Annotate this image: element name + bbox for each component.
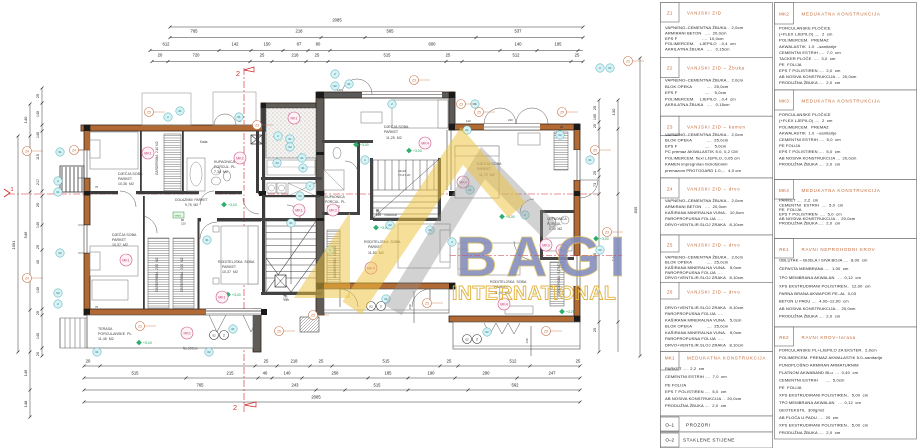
svg-text:VANJSKI ZID: VANJSKI ZID [687,11,722,16]
svg-text:PC premaz AKWALASTIK 5.0, 0,2: PC premaz AKWALASTIK 5.0, 0,2 CM [665,149,738,154]
svg-text:Z5: Z5 [667,243,673,248]
svg-text:01: 01 [231,327,235,331]
svg-text:ARMIRANI BETON .... 20,0cm: ARMIRANI BETON .... 20,0cm [665,204,727,209]
svg-text:Z5: Z5 [477,110,481,114]
svg-text:02: 02 [56,291,60,295]
svg-text:AKRILATNA ŽBUKA .... 0,15c: AKRILATNA ŽBUKA .... 0,15cm [665,46,730,51]
svg-text:515: 515 [374,383,382,388]
svg-text:MK1: MK1 [295,208,302,212]
svg-text:Z3: Z3 [311,313,315,317]
svg-text:premazom PROTOGARD 1.0,... 4,: premazom PROTOGARD 1.0,... 4,0 cm [665,168,741,173]
svg-text:11,45 M2: 11,45 M2 [98,337,114,341]
svg-text:PORCULANSKE PL.: PORCULANSKE PL. [98,332,133,336]
svg-text:25: 25 [264,359,269,364]
svg-text:EPS F ...: EPS F .... 5,0cm [665,144,727,149]
svg-text:01: 01 [56,190,60,194]
svg-text:DRVO+VENTILIR.SLOJ ZRAKA 8,1: DRVO+VENTILIR.SLOJ ZRAKA 8,10cm [665,275,744,280]
svg-text:PRODUŽNA ŽBUKA .... 2,0 cm: PRODUŽNA ŽBUKA .... 2,0 cm [779,80,841,85]
svg-text:TERASA: TERASA [98,327,113,331]
svg-text:GARDEROBA 3,20 M2: GARDEROBA 3,20 M2 [180,257,184,292]
svg-text:11,25 M2: 11,25 M2 [386,136,402,140]
svg-text:MK1: MK1 [144,151,151,155]
svg-text:01: 01 [178,109,182,113]
svg-text:02: 02 [485,330,489,334]
svg-text:KAMEN impregniran hidrofobnim: KAMEN impregniran hidrofobnim [665,162,728,167]
svg-text:10,37 M2: 10,37 M2 [222,270,238,274]
svg-text:01: 01 [465,128,469,132]
svg-text:140: 140 [36,111,40,117]
svg-text:218: 218 [296,29,304,34]
svg-text:25: 25 [36,245,40,249]
svg-text:OBLUTAK – BIJELA I SIVA BOJA .: OBLUTAK – BIJELA I SIVA BOJA .... 8,00 c… [779,258,868,263]
svg-text:217: 217 [36,179,40,185]
svg-text:MEDUKATNA KONSTRUKCIJA: MEDUKATNA KONSTRUKCIJA [687,356,766,361]
svg-text:RAVNI KROV–terasa: RAVNI KROV–terasa [802,335,856,340]
svg-text:Z3: Z3 [138,324,142,328]
svg-text:=ORMAR: =ORMAR [384,213,398,217]
svg-text:25: 25 [260,53,265,58]
svg-text:515: 515 [384,53,392,58]
svg-text:185: 185 [385,371,393,376]
svg-text:258: 258 [332,371,340,376]
svg-text:DJEČJA SOBA: DJEČJA SOBA [384,124,409,129]
svg-text:02: 02 [298,194,302,198]
svg-text:EPS F ...: EPS F .... 5,0cm [665,90,727,95]
svg-text:140: 140 [36,333,40,339]
svg-text:MK3: MK3 [779,99,789,104]
svg-text:PARNA BRANA AKWAPOR PE–AL 0,0: PARNA BRANA AKWAPOR PE–AL 0,03 [779,291,857,296]
svg-text:PE FOLIJA: PE FOLIJA [779,385,802,390]
svg-text:290: 290 [483,371,491,376]
svg-text:EPS T POLISTIREN .... 2,0 cm: EPS T POLISTIREN .... 2,0 cm [779,68,841,73]
svg-text:VAPNENO–CEMENTNA ŽBUKA.. 2,0c: VAPNENO–CEMENTNA ŽBUKA.. 2,0cm [665,132,744,137]
svg-text:XPS EKSTRUDIRANI POLISTIREN..: XPS EKSTRUDIRANI POLISTIREN.. 12,00 cm [779,284,871,289]
svg-text:01: 01 [95,350,99,354]
svg-text:AKRILATNA ŽBUKA .... 0,15c: AKRILATNA ŽBUKA .... 0,15cm [665,102,730,107]
svg-text:MK1: MK1 [218,295,225,299]
svg-text:01: 01 [289,221,293,225]
svg-text:MK2: MK2 [779,12,789,17]
svg-text:AKWALASTIK 1.0 –sanitarije: AKWALASTIK 1.0 –sanitarije [779,44,837,49]
svg-text:25: 25 [319,359,324,364]
svg-text:RK2: RK2 [184,331,191,335]
svg-text:40: 40 [36,260,40,264]
svg-text:MEDUKATNA KONSTRUKCIJA: MEDUKATNA KONSTRUKCIJA [802,188,881,193]
svg-text:9,76 M2: 9,76 M2 [185,203,198,207]
svg-text:537: 537 [515,29,523,34]
svg-text:01: 01 [288,137,292,141]
svg-text:01: 01 [205,238,209,242]
svg-text:140: 140 [466,119,471,123]
svg-text:Z5: Z5 [593,148,597,152]
svg-text:02: 02 [369,305,373,309]
svg-text:AB NOSIVA KONSTRUKCIJA .. 20,: AB NOSIVA KONSTRUKCIJA .. 20,0cm [665,396,742,401]
svg-text:O–2: O–2 [665,438,674,443]
svg-text:PARKET: PARKET [222,265,237,269]
svg-text:GARDEROBA 2,50 M2: GARDEROBA 2,50 M2 [155,257,159,292]
svg-text:MK1: MK1 [665,356,675,361]
svg-text:AB NOSIVA KONSTRUKCIJA ... 20: AB NOSIVA KONSTRUKCIJA ... 20,0cm [779,155,857,160]
svg-text:150: 150 [264,42,272,47]
svg-text:MK4: MK4 [779,188,789,193]
svg-text:BLOK OPEKA .... 25: BLOK OPEKA .... 25,0cm [665,324,729,329]
svg-text:02: 02 [388,223,392,227]
svg-text:17x17,20: 17x17,20 [398,173,411,177]
svg-text:RODITELJSKA SOBA: RODITELJSKA SOBA [218,260,255,264]
svg-text:+3,40: +3,40 [232,293,241,297]
svg-text:PE FOLIJA: PE FOLIJA [779,143,801,148]
svg-text:140: 140 [515,42,523,47]
svg-text:765: 765 [191,29,199,34]
svg-text:POLIMERCEM. LJEPILO ..0,4: POLIMERCEM. LJEPILO ..0,4 cm [665,96,736,101]
svg-text:VANJSKI ZID – kamen: VANJSKI ZID – kamen [687,125,746,130]
svg-text:25: 25 [446,53,451,58]
svg-text:247: 247 [549,371,557,376]
svg-text:POLIMERCEM. PREMAZ: POLIMERCEM. PREMAZ [779,124,829,129]
svg-text:PAROPROPUSNA FOLIJA ....: PAROPROPUSNA FOLIJA .... [665,216,723,221]
svg-text:140: 140 [23,116,28,123]
svg-text:PLATNOM AKWABAND BLu ... 0,4: PLATNOM AKWABAND BLu ... 0,40 cm [779,370,859,375]
svg-text:243: 243 [292,383,300,388]
svg-text:vetro: vetro [175,214,182,218]
svg-text:612: 612 [163,42,171,47]
svg-text:2: 2 [223,334,225,338]
svg-text:140: 140 [408,304,412,309]
svg-text:512: 512 [513,53,521,58]
svg-text:148: 148 [23,400,28,407]
svg-text:Z4: Z4 [667,187,673,192]
svg-text:140: 140 [36,287,40,293]
svg-text:10,37 M2: 10,37 M2 [112,243,128,247]
svg-text:25: 25 [36,94,40,98]
svg-text:01: 01 [588,158,592,162]
svg-text:MK3: MK3 [329,208,336,212]
svg-text:80: 80 [316,42,321,47]
svg-text:75: 75 [95,185,99,189]
svg-text:218: 218 [291,359,299,364]
svg-text:835: 835 [633,206,638,213]
svg-text:KUPAONICA: KUPAONICA [214,160,236,164]
svg-text:RK1: RK1 [779,247,789,252]
svg-text:BLOK OPEKA .... 25: BLOK OPEKA .... 25,0cm [665,138,729,143]
svg-text:AB PLOČA U PADU .... 20 cm: AB PLOČA U PADU .... 20 cm [779,415,839,420]
svg-text:DRVO+VENTILIR.SLOJ ZRAKA 8,1: DRVO+VENTILIR.SLOJ ZRAKA 8,10cm [665,305,744,310]
svg-text:25: 25 [593,328,597,332]
svg-text:2: 2 [476,338,478,342]
svg-text:10,36 M2: 10,36 M2 [118,182,134,186]
svg-text:73: 73 [593,183,597,187]
svg-text:PORCULANSKE PL+LJEPILO ZA EKST: PORCULANSKE PL+LJEPILO ZA EKSTER. 2,0cm [779,348,877,353]
svg-text:90: 90 [560,125,564,129]
svg-text:+3,43: +3,43 [228,203,237,207]
svg-text:23: 23 [275,161,279,165]
svg-text:GARDEROBA 2,10 M2: GARDEROBA 2,10 M2 [155,141,159,175]
svg-text:190: 190 [428,371,436,376]
svg-text:2085: 2085 [311,395,321,400]
svg-text:Z4: Z4 [72,148,76,152]
svg-text:RK1: RK1 [291,116,298,120]
svg-text:INTERNATIONAL: INTERNATIONAL [452,283,616,305]
svg-text:20: 20 [86,359,91,364]
svg-text:Z3: Z3 [459,102,463,106]
svg-text:Kada: Kada [200,140,208,144]
svg-text:TACKER PLOČE .... 3,0 cm: TACKER PLOČE .... 3,0 cm [779,56,836,61]
svg-text:CEMENTNI ESTRIH .... 5,0 cm: CEMENTNI ESTRIH .... 5,0 cm [779,137,841,142]
svg-text:VANJSKI ZID – drvo: VANJSKI ZID – drvo [687,243,740,248]
svg-text:AB NOSIVA KONSTRUKCIJA... 20,: AB NOSIVA KONSTRUKCIJA... 20,0cm [779,306,856,311]
svg-text:140: 140 [284,371,292,376]
svg-text:25: 25 [447,359,452,364]
svg-text:2: 2 [380,305,382,309]
svg-text:KUPAONICA: KUPAONICA [325,195,345,199]
svg-text:Z5: Z5 [544,329,548,333]
svg-text:195: 195 [555,42,563,47]
svg-text:RAVNI NEPROHODNI KROV: RAVNI NEPROHODNI KROV [802,247,876,252]
svg-text:20: 20 [158,53,163,58]
svg-text:PRODUŽNA ŽBUKA .... 2,0 cm: PRODUŽNA ŽBUKA .... 2,0 cm [779,162,841,167]
svg-text:Z5: Z5 [560,110,564,114]
svg-text:PROZORI: PROZORI [686,423,710,428]
svg-text:Z1: Z1 [667,11,673,16]
svg-text:VAPNENO–CEMENTNA ŽBUKA.. 2,0c: VAPNENO–CEMENTNA ŽBUKA.. 2,0cm [665,25,744,30]
svg-text:1: 1 [10,187,13,193]
svg-text:02: 02 [558,133,562,137]
svg-text:2: 2 [233,403,237,412]
svg-text:25: 25 [315,53,320,58]
svg-text:AB NOSIVA KONSTRUKCIJA ... 20: AB NOSIVA KONSTRUKCIJA ... 20,0cm [779,74,857,79]
svg-text:Z3: Z3 [667,125,673,130]
svg-text:02: 02 [465,338,469,342]
svg-text:Z3: Z3 [412,78,416,82]
svg-text:BLOK OPEKA .... 25: BLOK OPEKA .... 25,0cm [665,84,729,89]
svg-text:ARMIRANI BETON .... 20,0cm: ARMIRANI BETON .... 20,0cm [665,31,727,36]
svg-text:PRODUŽNA ŽBUKA .... 2,0 cm: PRODUŽNA ŽBUKA .... 2,0 cm [779,430,841,435]
svg-text:CEMENTNI ESTRIH .... 7,0 cm: CEMENTNI ESTRIH .... 7,0 cm [665,374,727,379]
svg-text:512: 512 [510,359,518,364]
svg-text:Z2: Z2 [667,66,673,71]
svg-text:515: 515 [132,371,140,376]
svg-text:VAPNENO–CEMENTNA ŽBUKA.. 2,0c: VAPNENO–CEMENTNA ŽBUKA.. 2,0cm [665,198,744,203]
svg-text:46: 46 [263,371,268,376]
svg-text:BAGI: BAGI [456,225,635,289]
svg-text:515: 515 [383,359,391,364]
svg-text:+3,00: +3,00 [360,143,369,147]
svg-text:01: 01 [58,150,62,154]
svg-text:PARKET: PARKET [118,177,133,181]
svg-text:01: 01 [347,82,351,86]
svg-text:VAPNENO–CEMENTNA ŽBUKA.. 2,0c: VAPNENO–CEMENTNA ŽBUKA.. 2,0cm [665,78,744,83]
svg-text:EPS F ....: EPS F .... 10,0cm [665,36,724,41]
svg-text:DOLAZNMI PARKET: DOLAZNMI PARKET [175,198,208,202]
svg-text:PRODUŽNA ŽBUKA .... 2,0 cm: PRODUŽNA ŽBUKA .... 2,0 cm [779,220,841,225]
svg-text:MK1: MK1 [122,258,129,262]
svg-text:Z3: Z3 [425,301,429,305]
svg-text:PORCUL. PL.: PORCUL. PL. [325,200,346,204]
svg-text:Z4: Z4 [25,149,29,153]
svg-text:XPS EKSTRUDIRANI POLISTIREN..: XPS EKSTRUDIRANI POLISTIREN.. 5,00 cm [779,393,869,398]
svg-text:POLIMERCEM. PREMAZ AKWALASTIK: POLIMERCEM. PREMAZ AKWALASTIK 5.0–sanita… [779,355,883,360]
svg-text:75: 75 [95,305,99,309]
svg-text:PUNOPLOŠNO ARMIRAN ARMATURNIM: PUNOPLOŠNO ARMIRAN ARMATURNIM [779,363,859,368]
svg-text:600: 600 [429,42,437,47]
svg-text:+3,20: +3,20 [566,310,575,314]
svg-text:VANJSKI ZID – drvo: VANJSKI ZID – drvo [687,187,740,192]
svg-text:25: 25 [576,359,581,364]
svg-text:CEMENTNI ESTRIH .... 5,0: CEMENTNI ESTRIH .... 5,0cm [779,378,845,383]
svg-text:Z5: Z5 [147,110,151,114]
svg-text:25: 25 [593,124,597,128]
svg-text:KAŠIRANA MINERALNA VUNA.. 10,: KAŠIRANA MINERALNA VUNA.. 10,0cm [665,210,744,215]
svg-text:XPS EKSTRUDIRANI POLISTIREN..: XPS EKSTRUDIRANI POLISTIREN.. 5,00 cm [779,423,869,428]
svg-text:140: 140 [36,132,40,138]
svg-text:120: 120 [283,297,288,301]
svg-text:PRODUŽNA ŽBUKA .... 2,0 cm: PRODUŽNA ŽBUKA .... 2,0 cm [779,314,841,319]
svg-text:1091: 1091 [11,240,16,250]
svg-text:02: 02 [288,145,292,149]
svg-text:POLIMERCEM. flexi LJEPILO..0,0: POLIMERCEM. flexi LJEPILO..0,05 cm [665,155,740,160]
svg-text:546: 546 [23,231,28,238]
svg-text:MK2: MK2 [236,156,243,160]
svg-text:210: 210 [181,222,186,226]
svg-text:ČEPASTA MEMBRANA .... 1,00 c: ČEPASTA MEMBRANA .... 1,00 cm [779,266,849,271]
svg-text:PE FOLIJA: PE FOLIJA [665,383,687,388]
svg-text:02: 02 [58,251,62,255]
svg-text:GEOTEKSTIL 300g/m2: GEOTEKSTIL 300g/m2 [779,408,825,413]
svg-text:STAKLENE STIJENE: STAKLENE STIJENE [683,438,735,443]
svg-text:PARKET: PARKET [384,130,399,134]
svg-text:EPS T POLISTIREN .... 5,0 cm: EPS T POLISTIREN .... 5,0 cm [779,149,841,154]
svg-text:Z6: Z6 [277,329,281,333]
svg-text:POLIMERCEM. PREMAZ: POLIMERCEM. PREMAZ [779,38,829,43]
svg-text:146: 146 [23,369,28,376]
svg-text:PAROPROPUSNA FOLIJA ....: PAROPROPUSNA FOLIJA .... [665,336,723,341]
svg-text:CEMENTNI ESTRIH .... 7,0 cm: CEMENTNI ESTRIH .... 7,0 cm [779,50,841,55]
svg-text:KAŠIRANA MINERALNA VUNA. 5,0: KAŠIRANA MINERALNA VUNA. 5,0cm [665,330,742,335]
svg-text:PAROPROPUSNA FOLIJA ....: PAROPROPUSNA FOLIJA .... [665,311,723,316]
svg-text:TPO MEMBRANA AKWALAN ... 0,: TPO MEMBRANA AKWALAN ... 0,12 cm [779,275,861,280]
svg-text:Z6: Z6 [667,290,673,295]
svg-text:01: 01 [300,156,304,160]
svg-text:TPO MEMBRANA AKWALAN ... 0,: TPO MEMBRANA AKWALAN ... 0,12 cm [779,400,861,405]
svg-text:115: 115 [36,154,40,160]
svg-text:PORCULANSKE PLOČICE: PORCULANSKE PLOČICE [779,26,831,31]
svg-text:(+FLEX LJEPILO) .... 2 cm: (+FLEX LJEPILO) .... 2 cm [779,32,833,37]
svg-text:O–1: O–1 [665,423,674,428]
svg-text:02: 02 [207,350,211,354]
svg-text:MEDUKATNA KONSTRUKCIJA: MEDUKATNA KONSTRUKCIJA [802,99,881,104]
svg-text:PARKET: PARKET [112,238,127,242]
svg-text:MEDUKATNA KONSTRUKCIJA: MEDUKATNA KONSTRUKCIJA [802,12,881,17]
svg-text:87: 87 [297,42,302,47]
svg-text:Z4: Z4 [25,276,29,280]
svg-text:KAŠIRANA MINERALNA VUNA. 5,0: KAŠIRANA MINERALNA VUNA. 5,0cm [665,318,742,323]
svg-text:PORCUL. PL.: PORCUL. PL. [214,165,236,169]
svg-text:120: 120 [376,212,381,216]
svg-text:Z3: Z3 [255,123,259,127]
svg-text:105: 105 [593,114,597,120]
svg-text:DRVO+VENTILIR.SLOJ ZRAKA 8,1: DRVO+VENTILIR.SLOJ ZRAKA 8,10cm [665,222,744,227]
svg-text:01: 01 [608,66,612,70]
svg-text:RK2: RK2 [779,335,789,340]
svg-text:215: 215 [227,371,235,376]
svg-text:+3,43: +3,43 [143,341,152,345]
svg-text:765: 765 [197,383,205,388]
svg-text:VANJSKI ZID – drvo: VANJSKI ZID – drvo [687,290,740,295]
svg-text:PORCULANSKE PLOČICE: PORCULANSKE PLOČICE [779,112,831,117]
svg-text:25: 25 [575,53,580,58]
svg-text:142: 142 [232,42,240,47]
svg-text:(+FLEX LJEPILO) .... 2 cm: (+FLEX LJEPILO) .... 2 cm [779,118,833,123]
svg-text:565: 565 [387,29,395,34]
svg-text:PARKET .... 2,2 cm: PARKET .... 2,2 cm [665,366,705,371]
svg-text:VANJSKI ZID – Žbuka: VANJSKI ZID – Žbuka [687,64,745,71]
svg-text:2085: 2085 [332,18,342,23]
svg-text:DRVO+VENTILIR.SLOJ ZRAKA 8,1: DRVO+VENTILIR.SLOJ ZRAKA 8,10cm [665,342,744,347]
svg-text:25: 25 [36,203,40,207]
svg-text:+3,00: +3,00 [413,149,422,153]
svg-text:EPS T POLISTIREN .... 5,0 cm: EPS T POLISTIREN .... 5,0 cm [665,389,727,394]
svg-text:20: 20 [36,352,40,356]
svg-text:130: 130 [611,108,616,115]
svg-text:BETON U PADU .... 4,00–12,00: BETON U PADU .... 4,00–12,00 cm [779,298,849,303]
svg-text:7,38 M2: 7,38 M2 [214,170,228,174]
svg-text:Ns.100cm: Ns.100cm [183,347,198,351]
svg-text:2: 2 [236,69,240,78]
svg-text:562: 562 [512,383,520,388]
svg-text:218: 218 [292,53,300,58]
svg-text:PRODUŽNA ŽBUKA .... 2,0 cm: PRODUŽNA ŽBUKA .... 2,0 cm [665,403,727,408]
svg-text:01: 01 [237,115,241,119]
svg-text:DJEČJA SOBA: DJEČJA SOBA [112,232,137,237]
svg-text:140: 140 [525,338,529,343]
svg-text:PE FOLIJA: PE FOLIJA [779,62,802,67]
svg-text:720: 720 [193,53,201,58]
svg-text:140: 140 [36,222,40,228]
svg-text:01: 01 [301,166,305,170]
svg-text:02: 02 [212,334,216,338]
svg-text:AKWALASTIK 1.0 –sanitarije: AKWALASTIK 1.0 –sanitarije [779,131,837,136]
svg-text:25: 25 [593,106,597,110]
svg-text:240: 240 [508,118,513,122]
svg-text:MK4: MK4 [421,141,428,145]
svg-text:Z3: Z3 [626,59,630,63]
svg-text:25: 25 [593,171,597,175]
svg-text:25: 25 [36,311,40,315]
svg-text:DJEČJA SOBA: DJEČJA SOBA [118,171,143,176]
svg-text:02: 02 [333,84,337,88]
